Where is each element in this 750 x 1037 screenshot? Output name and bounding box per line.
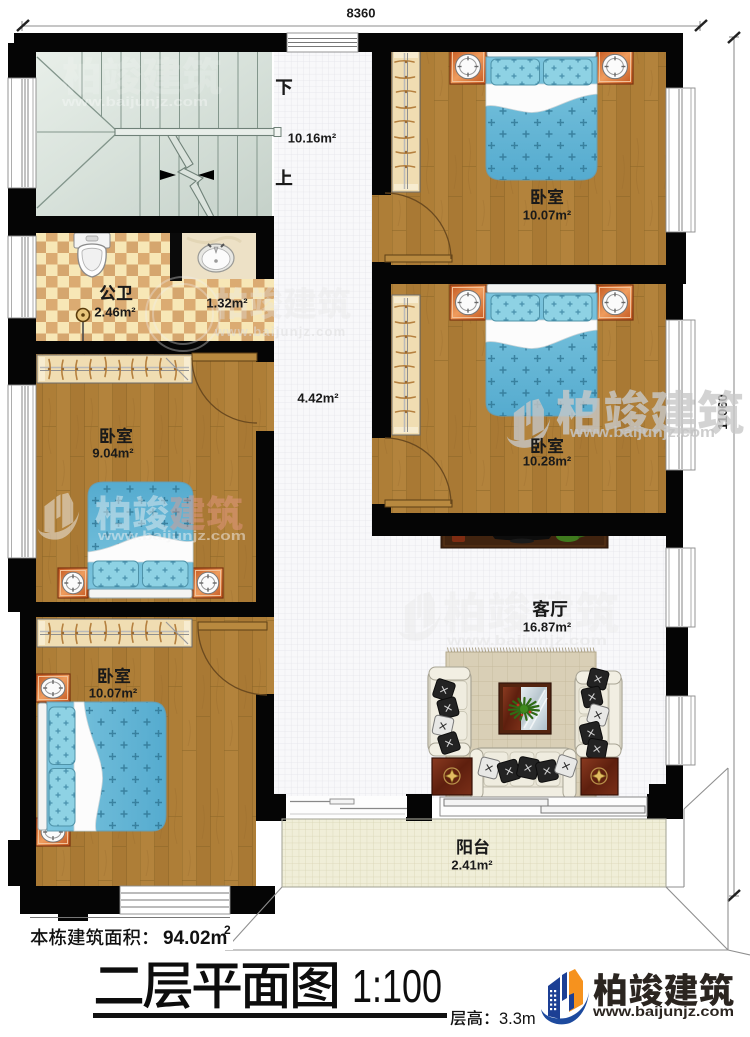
svg-text:10.28m²: 10.28m² (523, 454, 572, 469)
svg-text:8360: 8360 (347, 6, 376, 21)
svg-text:4.42m²: 4.42m² (297, 391, 339, 406)
svg-text:10.07m²: 10.07m² (89, 686, 138, 701)
svg-text:16.87m²: 16.87m² (523, 620, 572, 635)
svg-text:www.baijunjz.com: www.baijunjz.com (592, 1003, 734, 1019)
svg-text:www.baijunjz.com: www.baijunjz.com (214, 324, 346, 339)
svg-text:2.46m²: 2.46m² (94, 305, 136, 320)
svg-text:1.32m²: 1.32m² (206, 296, 248, 311)
svg-text:2.41m²: 2.41m² (451, 858, 493, 873)
svg-text:10.07m²: 10.07m² (523, 208, 572, 223)
svg-text:94.02m: 94.02m (163, 928, 227, 949)
svg-text:www.baijunjz.com: www.baijunjz.com (97, 528, 246, 543)
svg-text:www.baijunjz.com: www.baijunjz.com (61, 95, 208, 109)
svg-text:9.04m²: 9.04m² (92, 446, 134, 461)
svg-text:3.3m: 3.3m (499, 1010, 536, 1028)
svg-text:2: 2 (224, 923, 231, 937)
svg-text:www.baijunjz.com: www.baijunjz.com (569, 424, 715, 441)
svg-text:1:100: 1:100 (352, 960, 442, 1012)
svg-text:10.16m²: 10.16m² (288, 131, 337, 146)
